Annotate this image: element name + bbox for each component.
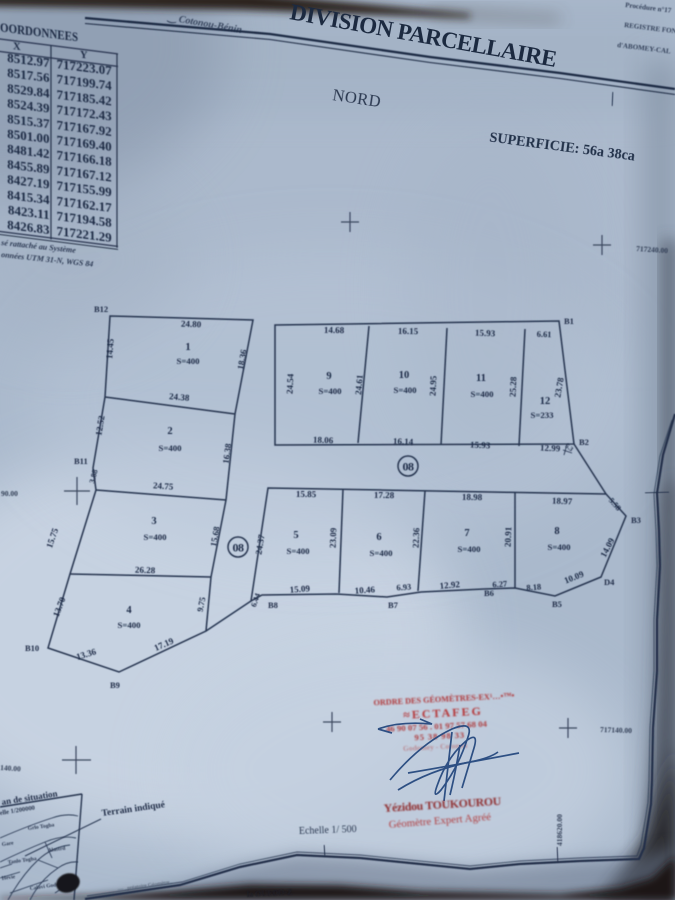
svg-text:22.36: 22.36 [411,527,422,548]
svg-text:B6: B6 [484,588,494,598]
svg-text:B5: B5 [552,599,562,609]
svg-text:18.97: 18.97 [552,496,573,507]
svg-text:B12: B12 [94,304,108,314]
svg-text:8.18: 8.18 [526,581,542,592]
svg-text:16.14: 16.14 [393,436,414,447]
svg-text:90.00: 90.00 [1,489,18,498]
svg-text:S=400: S=400 [369,548,393,558]
svg-text:24.54: 24.54 [284,373,295,394]
svg-text:6: 6 [376,532,381,543]
svg-text:S=400: S=400 [547,542,571,552]
svg-text:S=400: S=400 [176,356,200,366]
svg-text:10.46: 10.46 [354,584,375,595]
svg-text:12.92: 12.92 [439,579,461,591]
svg-text:12.99: 12.99 [540,442,561,453]
svg-text:6.93: 6.93 [396,582,412,593]
svg-text:24.95: 24.95 [427,375,438,396]
svg-text:S=400: S=400 [158,443,182,453]
svg-text:S=400: S=400 [457,544,481,554]
svg-text:9: 9 [326,371,331,382]
svg-text:15.93: 15.93 [470,439,491,450]
svg-text:1: 1 [185,342,190,353]
svg-text:B2: B2 [579,437,589,447]
svg-text:3: 3 [151,516,156,527]
svg-text:12: 12 [540,396,551,407]
svg-text:S=400: S=400 [470,389,494,399]
svg-text:S=400: S=400 [286,546,310,556]
svg-text:6.61: 6.61 [536,329,551,340]
svg-text:B10: B10 [25,643,39,653]
svg-text:24.80: 24.80 [181,319,202,330]
svg-text:B3: B3 [631,515,641,525]
svg-text:B7: B7 [388,600,399,610]
svg-text:418620.00: 418620.00 [555,814,564,846]
svg-text:08: 08 [233,541,245,555]
svg-text:S=400: S=400 [393,385,417,395]
svg-text:Echelle 1/ 500: Echelle 1/ 500 [299,824,357,837]
svg-text:15.93: 15.93 [475,328,496,339]
svg-text:2: 2 [167,426,172,437]
svg-text:17.28: 17.28 [374,490,395,500]
svg-text:10: 10 [399,370,410,381]
svg-text:24.61: 24.61 [353,374,365,396]
svg-text:5: 5 [293,530,298,541]
svg-text:B9: B9 [110,680,120,690]
svg-text:11: 11 [476,373,486,384]
svg-text:S=400: S=400 [117,620,141,630]
svg-text:S=233: S=233 [530,410,554,420]
svg-text:18.98: 18.98 [462,492,483,502]
svg-text:B8: B8 [268,600,278,610]
svg-text:14.68: 14.68 [324,325,345,335]
svg-text:S=400: S=400 [143,532,167,542]
svg-text:18.06: 18.06 [313,435,334,446]
svg-text:B11: B11 [74,456,88,466]
svg-text:15.85: 15.85 [296,489,317,499]
svg-text:08: 08 [403,460,415,474]
svg-text:8: 8 [554,526,559,537]
svg-text:B1: B1 [564,316,574,326]
svg-text:16.15: 16.15 [398,326,419,336]
svg-text:24.75: 24.75 [153,480,174,491]
svg-text:26.28: 26.28 [135,565,156,576]
svg-text:7: 7 [464,528,469,539]
svg-text:24.38: 24.38 [169,391,191,403]
svg-text:20.91: 20.91 [503,526,514,547]
svg-text:717140.00: 717140.00 [600,725,632,735]
svg-text:14.45: 14.45 [104,338,115,359]
svg-text:140.00: 140.00 [0,763,21,773]
svg-text:4: 4 [126,605,132,616]
svg-text:D4: D4 [604,577,615,587]
svg-text:S=400: S=400 [318,386,342,396]
svg-text:23.09: 23.09 [328,527,339,548]
svg-text:15.09: 15.09 [289,583,310,594]
svg-text:6.27: 6.27 [492,578,508,589]
svg-text:25.28: 25.28 [507,376,518,397]
